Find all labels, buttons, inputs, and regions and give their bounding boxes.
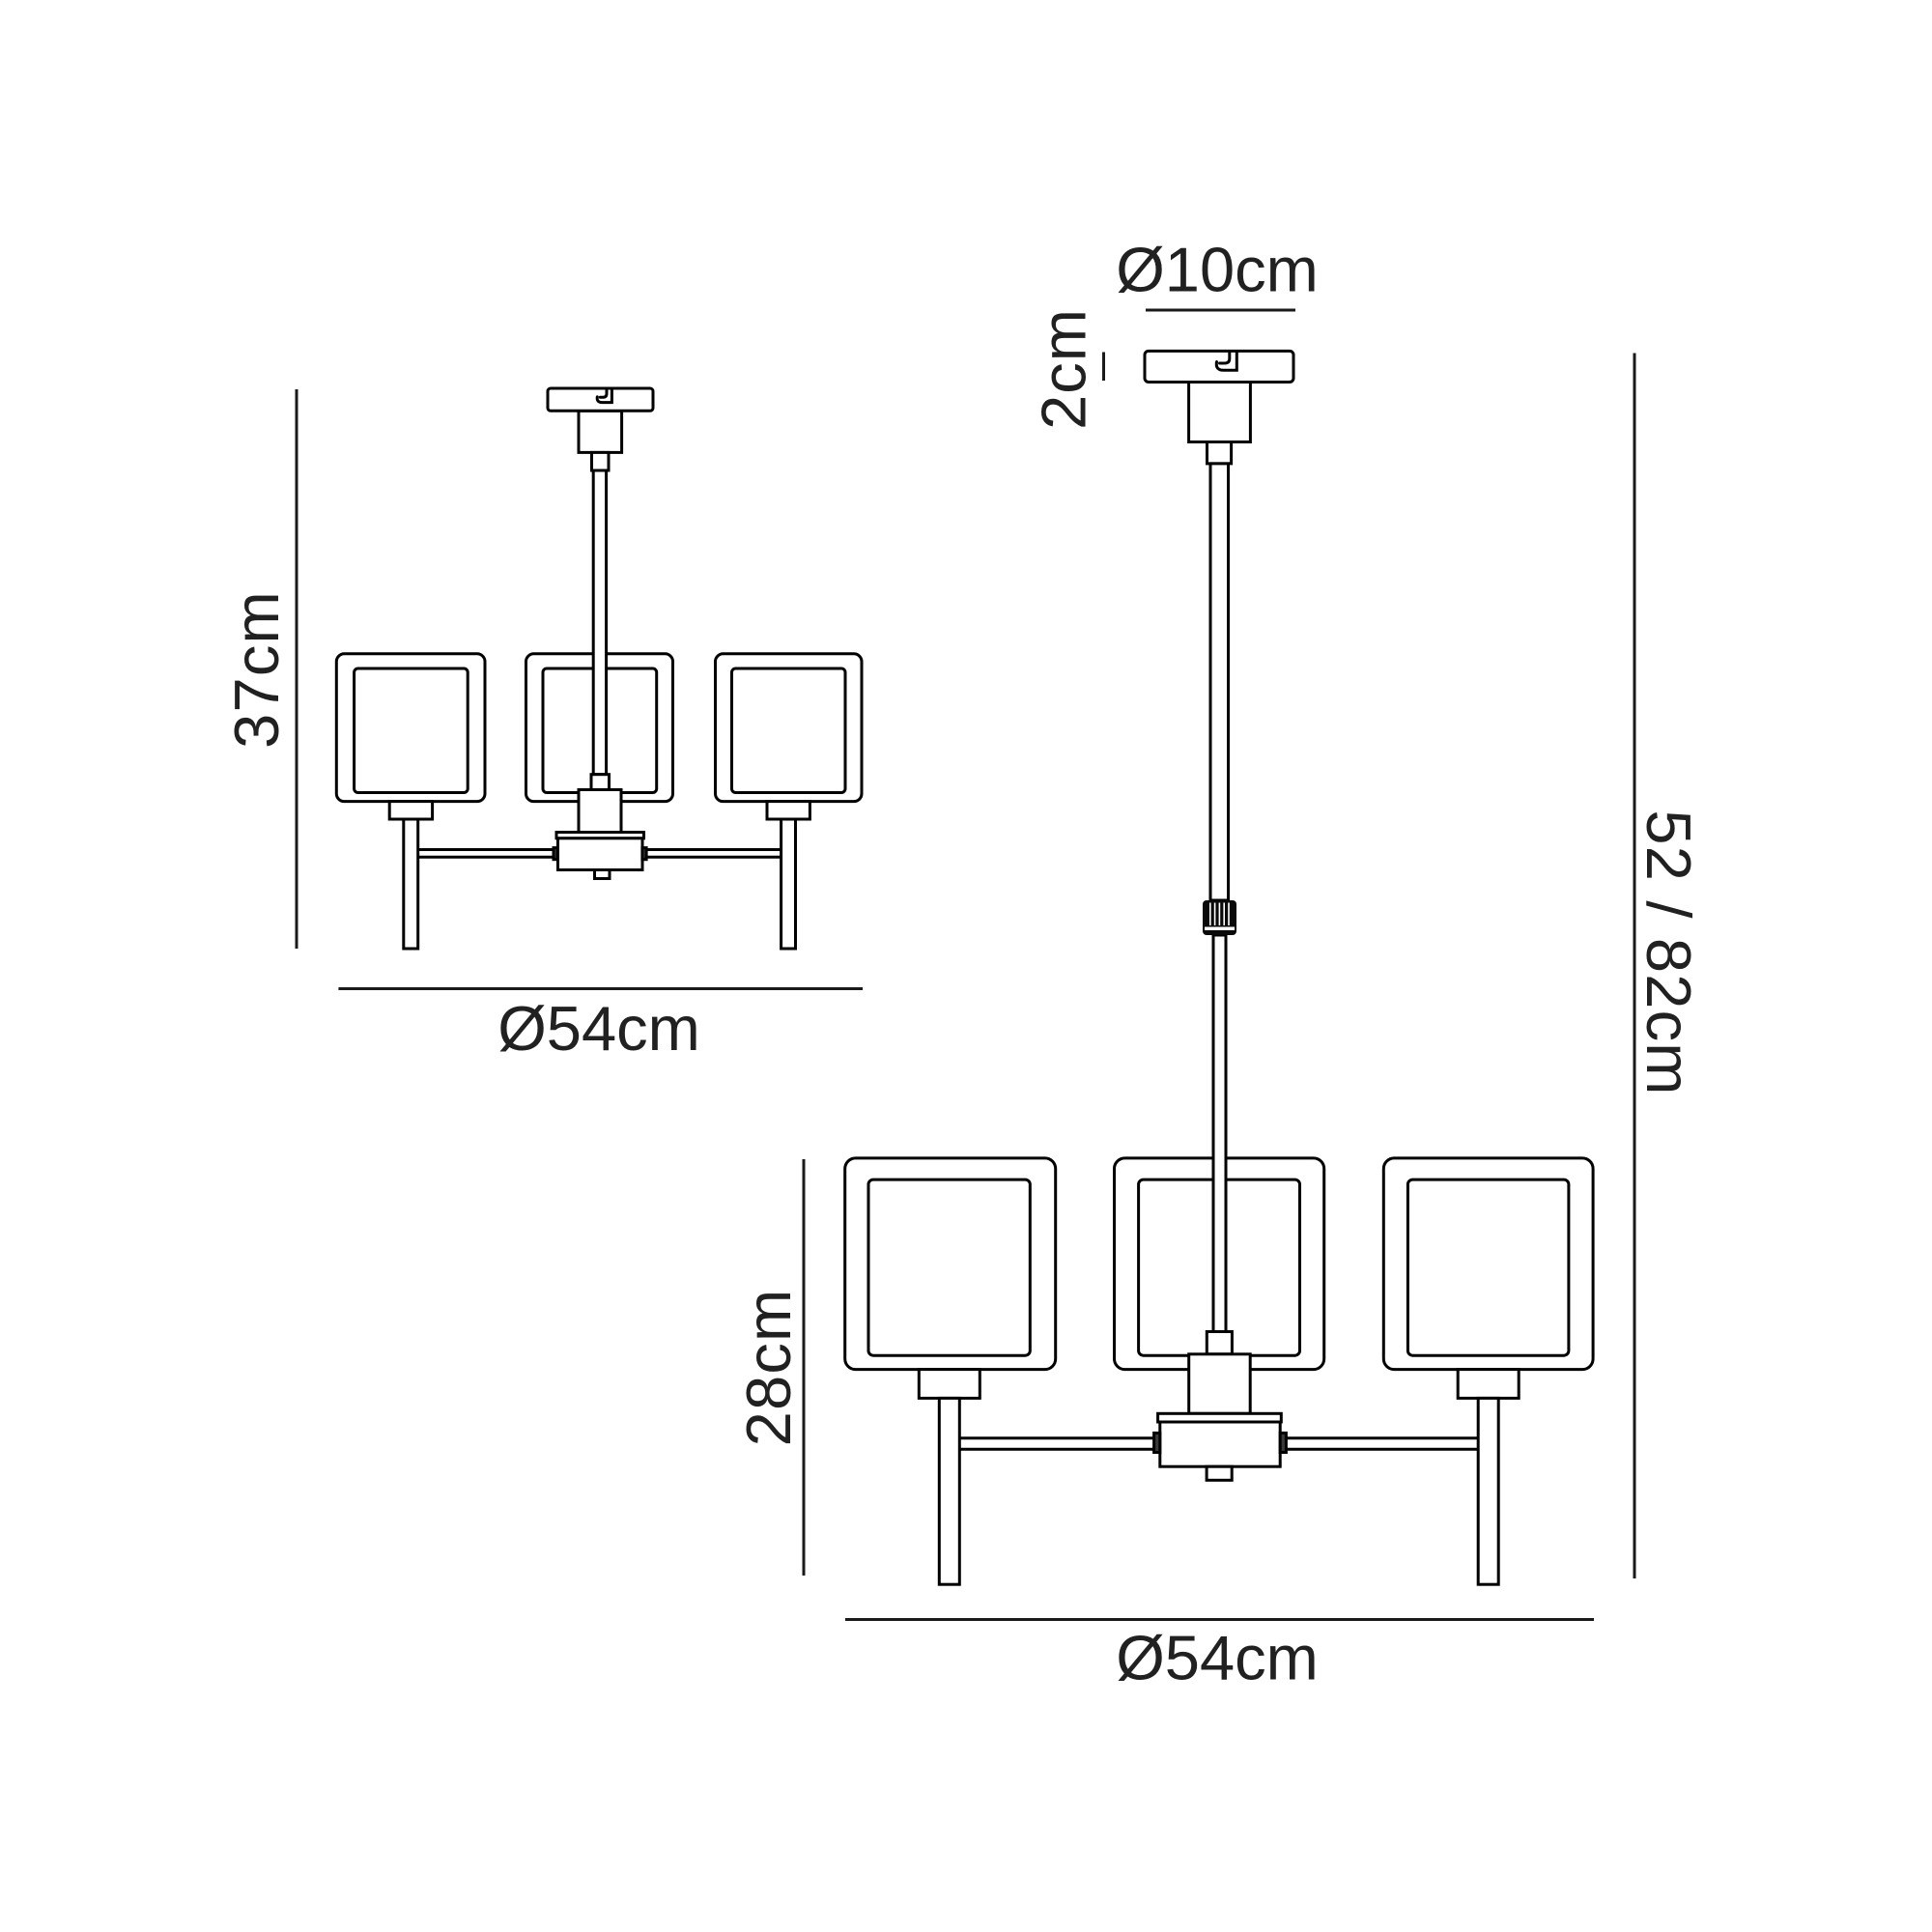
svg-text:28cm: 28cm [733,1289,804,1447]
svg-text:52 / 82cm: 52 / 82cm [1634,810,1704,1095]
svg-text:Ø10cm: Ø10cm [1116,234,1319,304]
svg-text:2cm: 2cm [1029,308,1099,430]
svg-text:Ø54cm: Ø54cm [1116,1622,1319,1692]
svg-text:Ø54cm: Ø54cm [497,993,700,1064]
svg-text:37cm: 37cm [221,590,292,749]
